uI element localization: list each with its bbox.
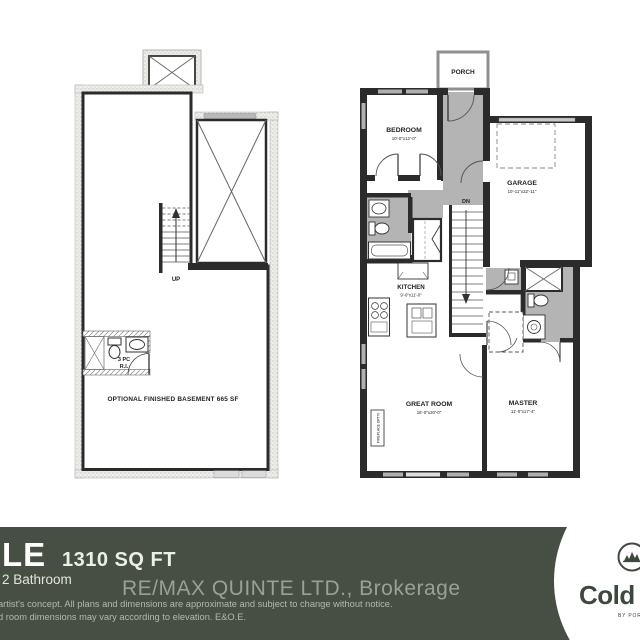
bedroom-dims: 10'-0"x12'-0" (392, 136, 417, 141)
garage-door (499, 118, 575, 122)
shower-icon (525, 267, 562, 291)
floor-plans-drawing: UP 3 PC R.I. OPTIONAL FINISHED BASEMENT … (0, 0, 640, 527)
kitchen-dims: 9'-0"x11'-0" (400, 293, 422, 298)
stove-icon (369, 298, 390, 336)
floorplan-flyer: UP 3 PC R.I. OPTIONAL FINISHED BASEMENT … (0, 0, 640, 640)
fireplace-option: FIREPLACE OPT'N (371, 410, 384, 446)
sink-icon (369, 200, 389, 217)
dn-label: DN (462, 199, 470, 205)
basement-window (242, 471, 266, 478)
master-dims: 11'-0"x17'-4" (511, 409, 536, 414)
footer-band: LE 1310 SQ FT 2 Bathroom RE/MAX QUINTE L… (0, 527, 640, 640)
main-stairs: DN (452, 199, 483, 324)
kitchen-label: KITCHEN (397, 284, 425, 291)
toilet-icon (369, 222, 389, 235)
disclaimer-line-1: artist's concept. All plans and dimensio… (0, 599, 393, 609)
bathroom-count: 2 Bathroom (2, 572, 72, 587)
coldwell-banker-emblem-icon (617, 542, 640, 572)
basement-note: OPTIONAL FINISHED BASEMENT 665 SF (107, 396, 238, 403)
ensuite-door (540, 342, 560, 362)
great-room-dims: 16'-0"x20'-0" (417, 410, 442, 415)
brokerage-name: RE/MAX QUINTE LTD., Brokerage (122, 577, 461, 601)
disclaimer-line-2: d room dimensions may vary according to … (0, 612, 246, 622)
model-name-partial: LE (2, 536, 46, 574)
walk-in-closet (489, 312, 523, 352)
porch: PORCH (438, 52, 488, 89)
sink-icon (126, 337, 148, 352)
toilet-icon (108, 338, 121, 359)
bedroom-label: BEDROOM (386, 127, 422, 134)
unexcavated-area (188, 120, 268, 270)
basement-plan: UP 3 PC R.I. OPTIONAL FINISHED BASEMENT … (75, 50, 278, 478)
great-room-label: GREAT ROOM (406, 401, 453, 408)
coldwell-banker-wordmark-partial: Cold (579, 580, 635, 611)
garage-dims: 10'-11"x22'-11" (508, 189, 537, 194)
square-footage: 1310 SQ FT (62, 549, 176, 572)
main-floor-plan: PORCH (360, 52, 592, 478)
rough-in-label-1: 3 PC (118, 357, 130, 363)
down-arrow-icon (462, 294, 470, 304)
fridge-icon (398, 263, 428, 279)
logo-subtext-partial: BY PORT (618, 613, 640, 619)
basement-window (214, 471, 239, 478)
bedroom-doors (376, 154, 441, 176)
fireplace-label: FIREPLACE OPT'N (377, 413, 381, 443)
rough-in-label-2: R.I. (120, 364, 129, 370)
ensuite-sink-icon (523, 315, 545, 339)
ensuite-toilet-icon (528, 294, 548, 307)
garage-label: GARAGE (507, 180, 537, 187)
kitchen: KITCHEN 9'-0"x11'-0" (369, 263, 437, 337)
up-label: UP (172, 277, 180, 283)
hall-closet (413, 219, 441, 261)
island-sink-icon (407, 304, 436, 337)
bathtub-icon (369, 242, 411, 259)
porch-label: PORCH (451, 69, 475, 76)
master-label: MASTER (509, 400, 538, 407)
